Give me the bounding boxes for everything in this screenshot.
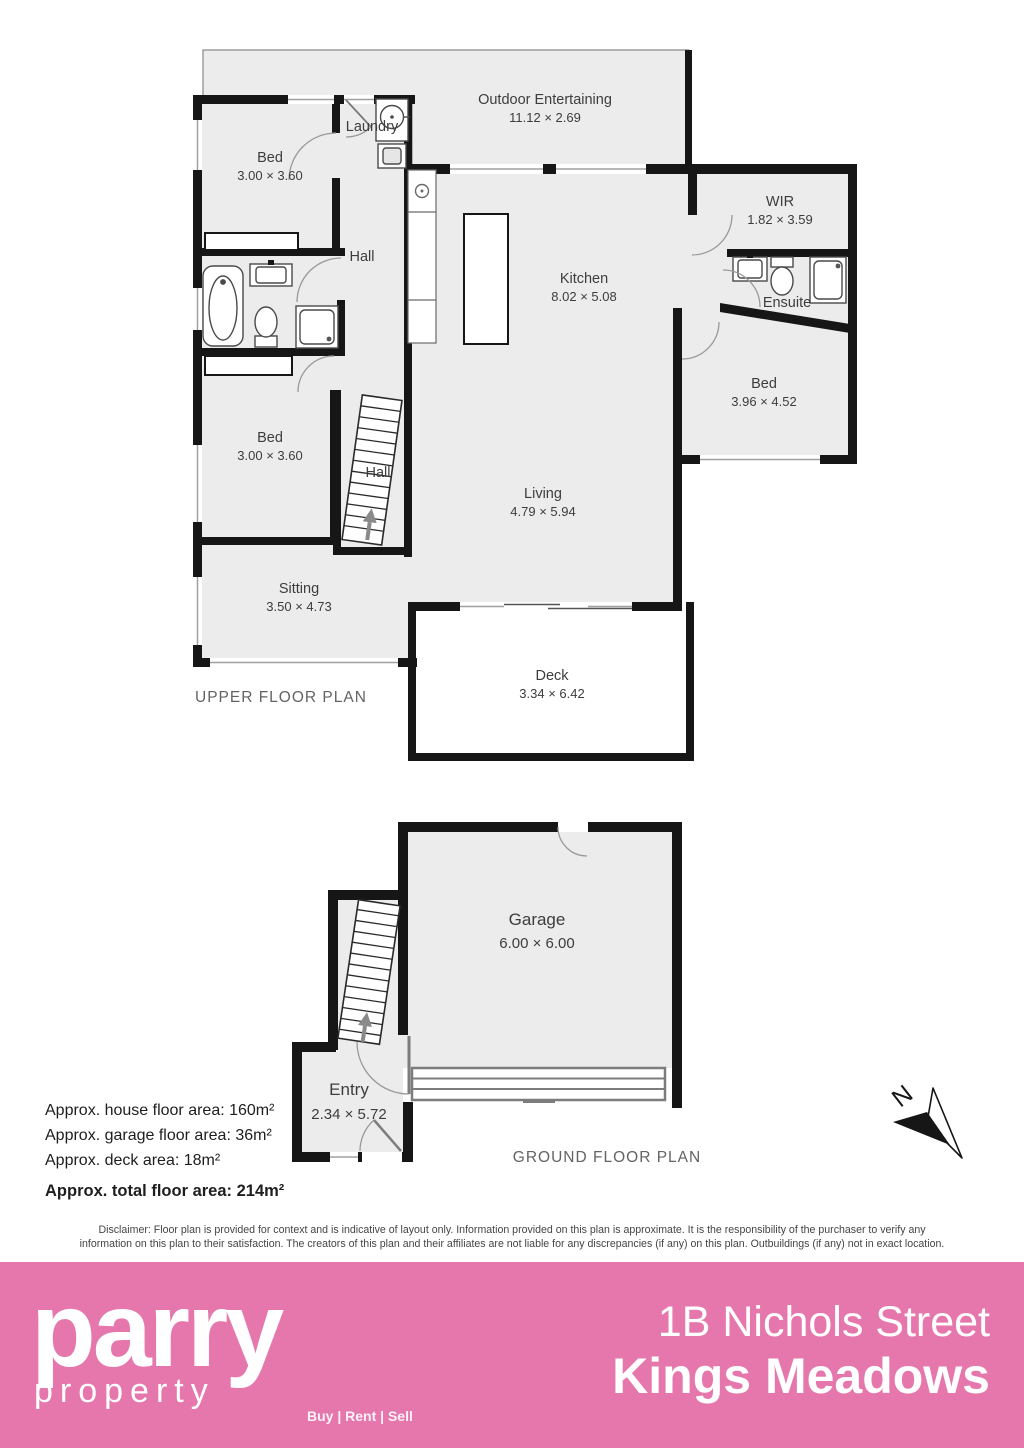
room-dims-sitting: 3.50 × 4.73 (266, 599, 331, 614)
room-dims-wir: 1.82 × 3.59 (747, 212, 812, 227)
footer-banner: parry property Buy | Rent | Sell 1B Nich… (0, 1262, 1024, 1448)
property-address: 1B Nichols Street Kings Meadows (612, 1294, 990, 1402)
area-deck: Approx. deck area: 18m² (45, 1148, 284, 1173)
wardrobe (205, 356, 292, 375)
bathroom-vanity (250, 260, 292, 286)
room-label-bed3: Bed (257, 430, 283, 446)
room-label-entry: Entry (329, 1080, 369, 1099)
wardrobe (205, 233, 298, 250)
room-label-ensuite: Ensuite (763, 295, 811, 311)
toilet (255, 307, 277, 347)
area-garage: Approx. garage floor area: 36m² (45, 1123, 284, 1148)
room-label-bed2: Bed (751, 376, 777, 392)
ensuite-vanity (733, 253, 767, 281)
room-dims-bed1: 3.00 × 3.60 (237, 168, 302, 183)
kitchen-island (464, 214, 508, 344)
room-label-wir: WIR (766, 194, 794, 210)
kitchen-counter (408, 170, 436, 343)
room-label-laundry: Laundry (346, 119, 399, 135)
room-dims-kitchen: 8.02 × 5.08 (551, 289, 616, 304)
room-dims-outdoor: 11.12 × 2.69 (509, 110, 581, 125)
room-label-bed1: Bed (257, 150, 283, 166)
ground-floor-plan: Garage 6.00 × 6.00 Entry 2.34 × 5.72 GRO… (292, 822, 701, 1166)
ensuite-toilet (771, 257, 793, 295)
area-total: Approx. total floor area: 214m² (45, 1179, 284, 1204)
room-dims-deck: 3.34 × 6.42 (519, 686, 584, 701)
room-label-kitchen: Kitchen (560, 271, 608, 287)
room-label-hall-stairs: Hall (366, 465, 391, 481)
disclaimer-text: Disclaimer: Floor plan is provided for c… (72, 1224, 952, 1251)
room-dims-bed2: 3.96 × 4.52 (731, 394, 796, 409)
room-label-deck: Deck (535, 668, 569, 684)
north-arrow: N (887, 1080, 962, 1158)
room-dims-bed3: 3.00 × 3.60 (237, 448, 302, 463)
garage-door (412, 1068, 665, 1102)
ground-plan-title: GROUND FLOOR PLAN (513, 1149, 701, 1166)
area-summary: Approx. house floor area: 160m² Approx. … (45, 1098, 284, 1204)
bathtub (203, 266, 243, 346)
room-label-sitting: Sitting (279, 581, 319, 597)
room-label-living: Living (524, 486, 562, 502)
room-dims-garage: 6.00 × 6.00 (499, 935, 574, 952)
area-house: Approx. house floor area: 160m² (45, 1098, 284, 1123)
washing-machine (378, 144, 406, 168)
room-label-outdoor: Outdoor Entertaining (478, 92, 612, 108)
ensuite-shower (810, 257, 846, 303)
brand-tagline: Buy | Rent | Sell (307, 1408, 413, 1424)
shower (296, 306, 338, 348)
upper-plan-title: UPPER FLOOR PLAN (195, 689, 367, 706)
floorplan-page: Outdoor Entertaining 11.12 × 2.69 Bed 3.… (0, 0, 1024, 1448)
room-label-garage: Garage (509, 910, 566, 929)
upper-floor-plan: Outdoor Entertaining 11.12 × 2.69 Bed 3.… (193, 50, 857, 761)
room-label-hall-upper: Hall (350, 249, 375, 265)
floor-plan-canvas: Outdoor Entertaining 11.12 × 2.69 Bed 3.… (0, 0, 1024, 1260)
room-dims-entry: 2.34 × 5.72 (311, 1106, 386, 1123)
brand-logo-sub: property (34, 1374, 215, 1408)
address-suburb: Kings Meadows (612, 1350, 990, 1402)
room-dims-living: 4.79 × 5.94 (510, 504, 575, 519)
north-label: N (887, 1080, 918, 1113)
address-street: 1B Nichols Street (612, 1294, 990, 1350)
